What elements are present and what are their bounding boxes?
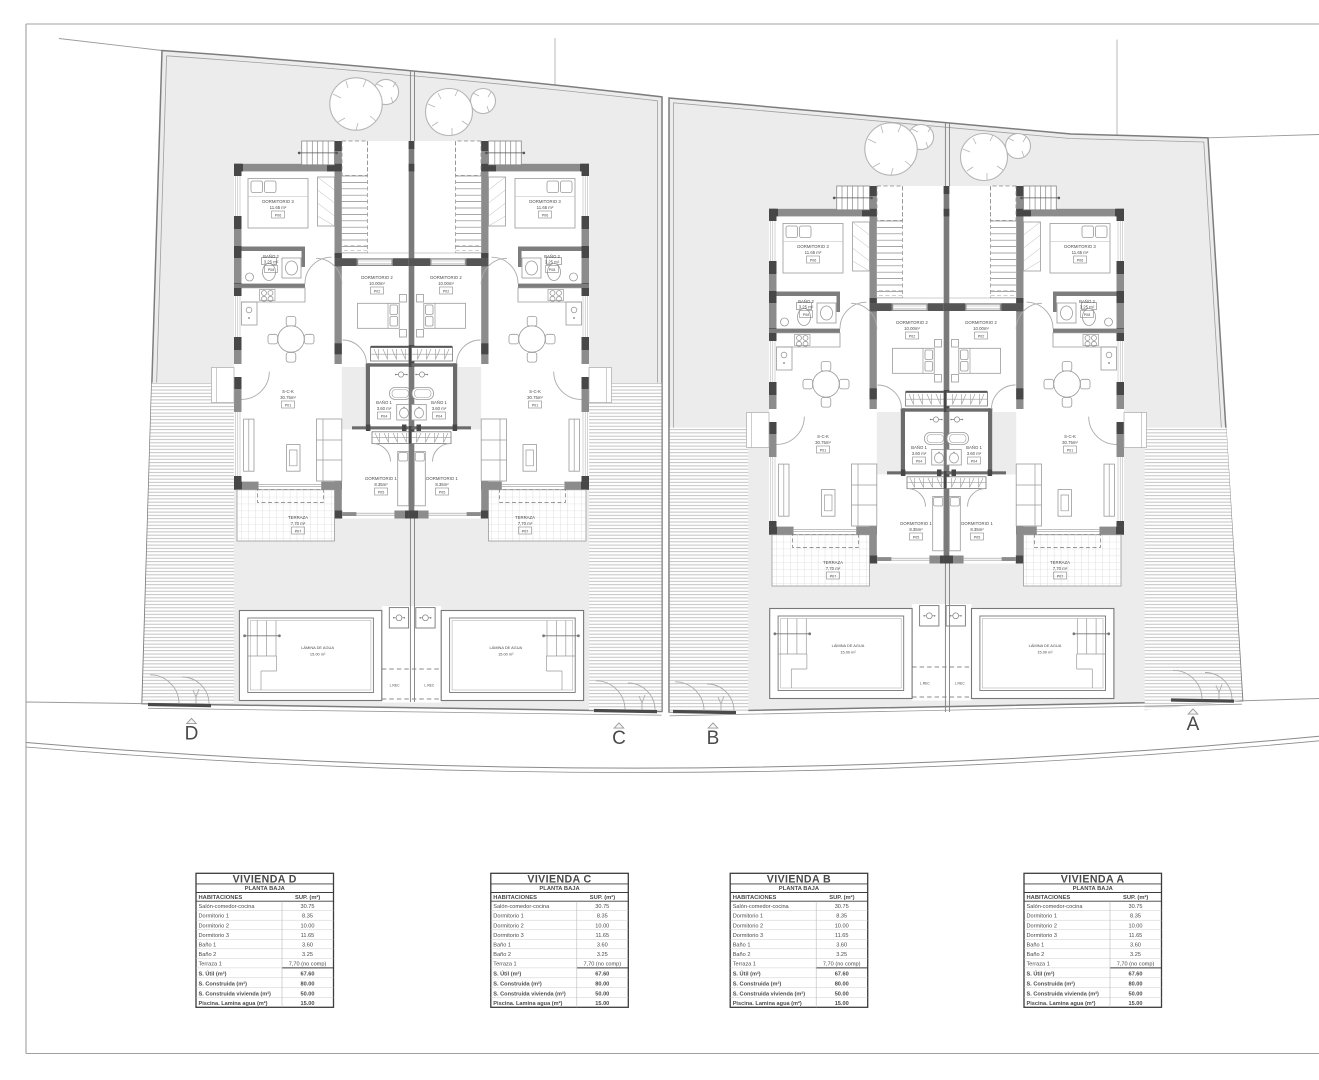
- svg-text:DORMITORIO 2: DORMITORIO 2: [361, 275, 393, 280]
- svg-text:10.00m²: 10.00m²: [369, 281, 385, 286]
- svg-text:8.35m²: 8.35m²: [374, 482, 388, 487]
- svg-text:7,70 m²: 7,70 m²: [291, 521, 306, 526]
- svg-text:TERRAZA: TERRAZA: [288, 515, 308, 520]
- svg-text:DORMITORIO 3: DORMITORIO 3: [262, 199, 294, 204]
- svg-text:30.75m²: 30.75m²: [280, 395, 296, 400]
- svg-text:DORMITORIO 1: DORMITORIO 1: [365, 476, 397, 481]
- svg-text:VIVIENDA D: VIVIENDA D: [233, 873, 297, 885]
- svg-text:L.REC: L.REC: [920, 682, 931, 686]
- svg-text:LÁMINA DE AGUA: LÁMINA DE AGUA: [1029, 643, 1062, 648]
- svg-text:P05: P05: [378, 490, 385, 494]
- svg-text:P08: P08: [549, 268, 556, 272]
- svg-text:TERRAZA: TERRAZA: [515, 515, 535, 520]
- svg-text:15.00 m²: 15.00 m²: [498, 651, 514, 656]
- svg-text:BAÑO 1: BAÑO 1: [431, 400, 447, 405]
- svg-text:DORMITORIO 2: DORMITORIO 2: [430, 275, 462, 280]
- svg-text:LÁMINA DE AGUA: LÁMINA DE AGUA: [489, 645, 522, 650]
- svg-text:B: B: [707, 728, 720, 749]
- svg-text:P01: P01: [285, 403, 292, 407]
- svg-text:3.25 m²: 3.25 m²: [264, 260, 279, 265]
- svg-text:3.60 m²: 3.60 m²: [432, 406, 447, 411]
- svg-text:P02: P02: [443, 289, 450, 293]
- svg-text:7,70 m²: 7,70 m²: [518, 521, 533, 526]
- svg-text:P08: P08: [268, 268, 275, 272]
- svg-text:P05: P05: [439, 490, 446, 494]
- svg-text:DORMITORIO 1: DORMITORIO 1: [426, 476, 458, 481]
- svg-text:VIVIENDA B: VIVIENDA B: [767, 873, 831, 885]
- svg-text:L.REC: L.REC: [424, 684, 435, 688]
- svg-text:S-C-K: S-C-K: [529, 389, 541, 394]
- svg-text:C: C: [612, 728, 626, 749]
- svg-text:P07: P07: [522, 529, 529, 533]
- svg-text:P04: P04: [381, 414, 388, 418]
- svg-text:15.00 m²: 15.00 m²: [1037, 649, 1053, 654]
- svg-text:P02: P02: [374, 289, 381, 293]
- svg-text:P06: P06: [275, 213, 282, 217]
- svg-text:LÁMINA DE AGUA: LÁMINA DE AGUA: [301, 645, 334, 650]
- svg-text:LÁMINA DE AGUA: LÁMINA DE AGUA: [832, 643, 865, 648]
- svg-text:L.REC: L.REC: [390, 684, 401, 688]
- svg-text:30.75m²: 30.75m²: [527, 395, 543, 400]
- svg-text:BAÑO 1: BAÑO 1: [376, 400, 392, 405]
- svg-text:15.00 m²: 15.00 m²: [840, 649, 856, 654]
- svg-text:10.00m²: 10.00m²: [438, 281, 454, 286]
- svg-text:S-C-K: S-C-K: [282, 389, 294, 394]
- svg-text:3.60 m²: 3.60 m²: [377, 406, 392, 411]
- svg-text:P06: P06: [542, 213, 549, 217]
- svg-text:11.65 m²: 11.65 m²: [537, 205, 554, 210]
- svg-text:P04: P04: [436, 414, 443, 418]
- svg-text:8.35m²: 8.35m²: [435, 482, 449, 487]
- svg-text:A: A: [1187, 714, 1200, 735]
- svg-text:P01: P01: [532, 403, 539, 407]
- svg-text:VIVIENDA A: VIVIENDA A: [1061, 873, 1125, 885]
- svg-text:15.00 m²: 15.00 m²: [310, 651, 326, 656]
- svg-text:L.REC: L.REC: [955, 682, 966, 686]
- svg-text:BAÑO 2: BAÑO 2: [544, 254, 560, 259]
- svg-text:3.25 m²: 3.25 m²: [545, 260, 560, 265]
- svg-text:D: D: [185, 724, 199, 745]
- svg-text:BAÑO 2: BAÑO 2: [263, 254, 279, 259]
- svg-text:11.65 m²: 11.65 m²: [270, 205, 287, 210]
- svg-text:VIVIENDA C: VIVIENDA C: [527, 873, 591, 885]
- svg-text:DORMITORIO 3: DORMITORIO 3: [529, 199, 561, 204]
- svg-text:P07: P07: [295, 529, 302, 533]
